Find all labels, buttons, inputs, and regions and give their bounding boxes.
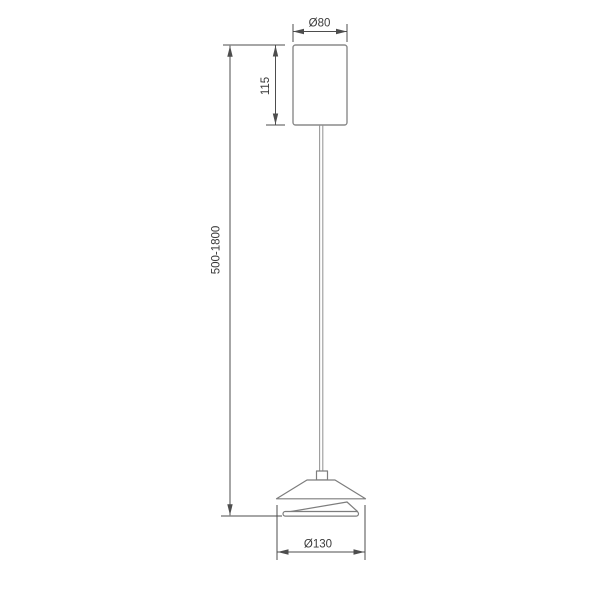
diffuser-right-edge bbox=[347, 502, 358, 512]
cable-connector bbox=[317, 471, 328, 480]
drop-height-dimension: 500-1800 bbox=[211, 46, 283, 516]
canopy-cylinder bbox=[293, 45, 347, 125]
canopy-height-label: 115 bbox=[260, 77, 272, 95]
drawing-canvas: Ø80 115 500-1800 bbox=[0, 0, 600, 600]
shade-outer-cone bbox=[277, 480, 366, 499]
technical-drawing: Ø80 115 500-1800 bbox=[0, 0, 600, 600]
suspension-cable bbox=[320, 126, 323, 472]
shade-inner-diffuser bbox=[283, 502, 359, 516]
canopy-diameter-label: Ø80 bbox=[309, 18, 331, 30]
drop-height-label: 500-1800 bbox=[211, 226, 223, 275]
canopy-diameter-dimension: Ø80 bbox=[293, 18, 347, 43]
shade-diameter-label: Ø130 bbox=[304, 539, 332, 551]
canopy-height-dimension: 115 bbox=[223, 45, 285, 125]
diffuser-rim bbox=[283, 512, 359, 517]
